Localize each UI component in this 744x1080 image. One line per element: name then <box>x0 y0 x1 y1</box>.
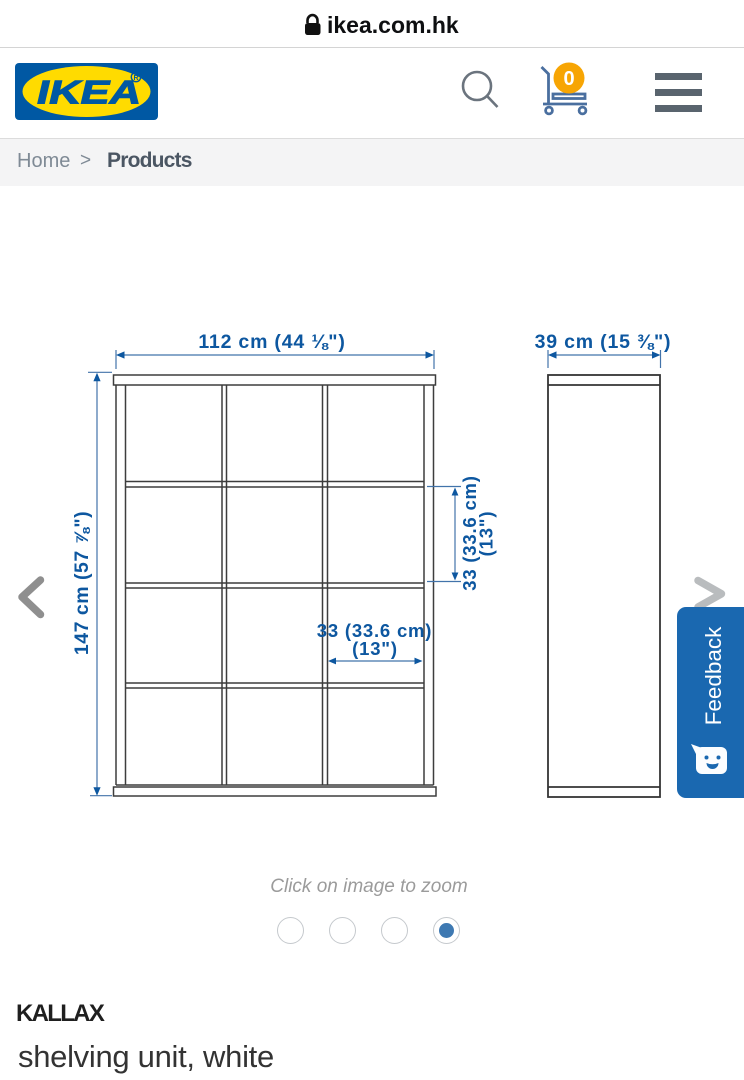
svg-text:(13"): (13") <box>476 511 497 557</box>
svg-text:39 cm (15 ⅜"): 39 cm (15 ⅜") <box>535 331 672 353</box>
svg-text:112 cm (44 ⅛"): 112 cm (44 ⅛") <box>198 331 345 353</box>
svg-text:(13"): (13") <box>352 638 398 659</box>
svg-text:0: 0 <box>563 68 574 90</box>
svg-text:147 cm (57 ⅞"): 147 cm (57 ⅞") <box>71 511 93 655</box>
svg-text:IKEA: IKEA <box>33 75 146 111</box>
svg-text:R: R <box>133 75 138 82</box>
